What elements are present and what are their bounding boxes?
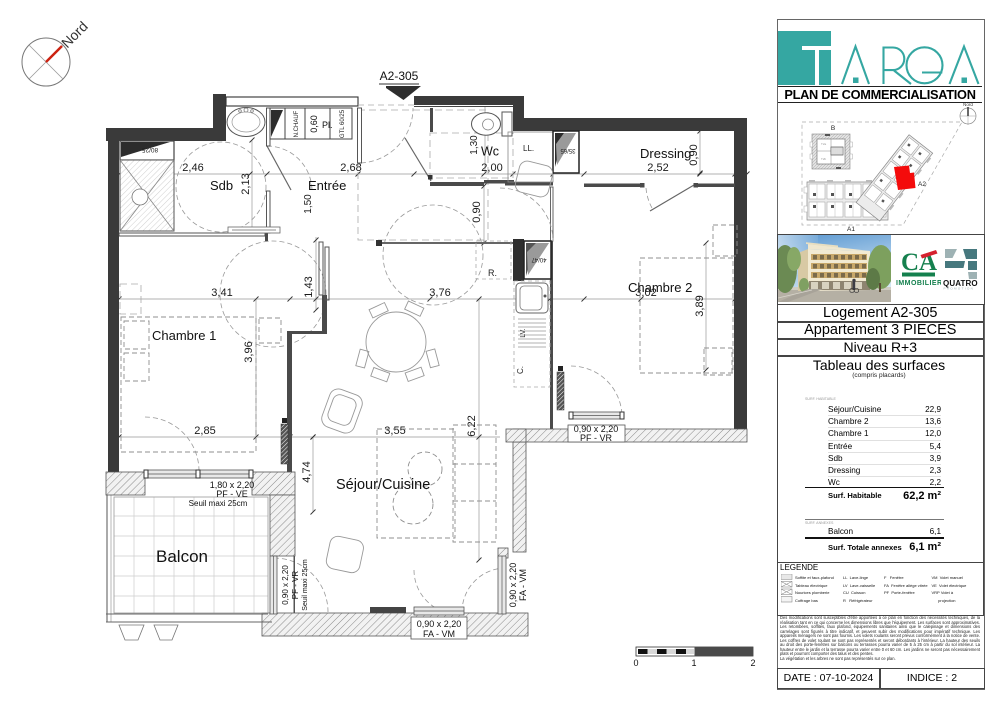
svg-text:0,90 x 2,20: 0,90 x 2,20 (417, 619, 462, 629)
svg-text:Balcon: Balcon (156, 547, 208, 566)
svg-text:40/47: 40/47 (531, 256, 547, 262)
svg-text:R.: R. (488, 268, 497, 278)
svg-text:GTL 60/25: GTL 60/25 (340, 109, 346, 138)
svg-text:Nord: Nord (963, 102, 973, 107)
svg-text:Wc: Wc (481, 145, 499, 159)
svg-text:Entrée: Entrée (308, 178, 346, 193)
svg-text:3,76: 3,76 (429, 287, 450, 299)
svg-text:PF - VR: PF - VR (580, 433, 613, 443)
svg-text:0: 0 (633, 658, 638, 668)
svg-text:FA - VM: FA - VM (518, 569, 528, 601)
svg-text:80/25: 80/25 (141, 146, 158, 153)
svg-text:2,52: 2,52 (647, 162, 668, 174)
svg-text:Seuil maxi 25cm: Seuil maxi 25cm (302, 559, 309, 611)
svg-text:LL.: LL. (523, 144, 534, 153)
svg-text:Sdb: Sdb (210, 178, 233, 193)
svg-text:Chambre 2: Chambre 2 (628, 280, 692, 295)
svg-text:T2b: T2b (821, 157, 827, 161)
svg-text:Chambre 1: Chambre 1 (152, 328, 216, 343)
svg-text:2,00: 2,00 (481, 162, 502, 174)
svg-text:Pl.: Pl. (322, 120, 333, 130)
svg-text:Nord: Nord (58, 18, 91, 51)
svg-text:35/65: 35/65 (560, 147, 576, 153)
svg-text:2,85: 2,85 (194, 425, 215, 437)
svg-text:C.: C. (516, 366, 525, 374)
svg-text:IMMOBILIER: IMMOBILIER (896, 280, 941, 286)
svg-text:0,90 x 2,20: 0,90 x 2,20 (281, 565, 290, 605)
svg-text:LV.: LV. (520, 328, 527, 337)
svg-text:3,55: 3,55 (384, 425, 405, 437)
svg-text:T2a: T2a (821, 142, 827, 146)
svg-text:2,68: 2,68 (340, 162, 361, 174)
svg-text:Seuil maxi 25cm: Seuil maxi 25cm (189, 499, 248, 508)
svg-text:FA - VM: FA - VM (423, 629, 455, 639)
svg-text:1,43: 1,43 (303, 276, 315, 297)
svg-text:2,13: 2,13 (240, 173, 252, 194)
svg-text:3,96: 3,96 (243, 341, 255, 362)
svg-text:PF - VR: PF - VR (291, 571, 300, 600)
svg-text:A2-305: A2-305 (380, 69, 419, 83)
svg-text:0,90: 0,90 (471, 201, 483, 222)
svg-text:0,60: 0,60 (309, 115, 319, 133)
svg-text:PROMOTION: PROMOTION (944, 287, 975, 290)
svg-text:Séjour/Cuisine: Séjour/Cuisine (336, 477, 430, 493)
svg-text:0,90 x 2,20: 0,90 x 2,20 (508, 563, 518, 608)
svg-text:Dressing: Dressing (640, 146, 691, 161)
svg-text:1,50: 1,50 (303, 194, 314, 214)
svg-text:A2: A2 (918, 181, 926, 188)
svg-text:1: 1 (691, 658, 696, 668)
svg-text:3,41: 3,41 (211, 287, 232, 299)
svg-text:A1: A1 (847, 226, 855, 232)
svg-text:B: B (831, 125, 835, 132)
svg-text:3,89: 3,89 (694, 295, 706, 316)
svg-text:N.CHAUF: N.CHAUF (294, 110, 300, 137)
svg-text:6,22: 6,22 (466, 415, 478, 436)
svg-text:2,46: 2,46 (182, 162, 203, 174)
svg-text:2: 2 (750, 658, 755, 668)
svg-text:PF - VE: PF - VE (216, 489, 248, 499)
svg-text:1,30: 1,30 (469, 135, 480, 155)
svg-text:4,74: 4,74 (301, 461, 313, 482)
